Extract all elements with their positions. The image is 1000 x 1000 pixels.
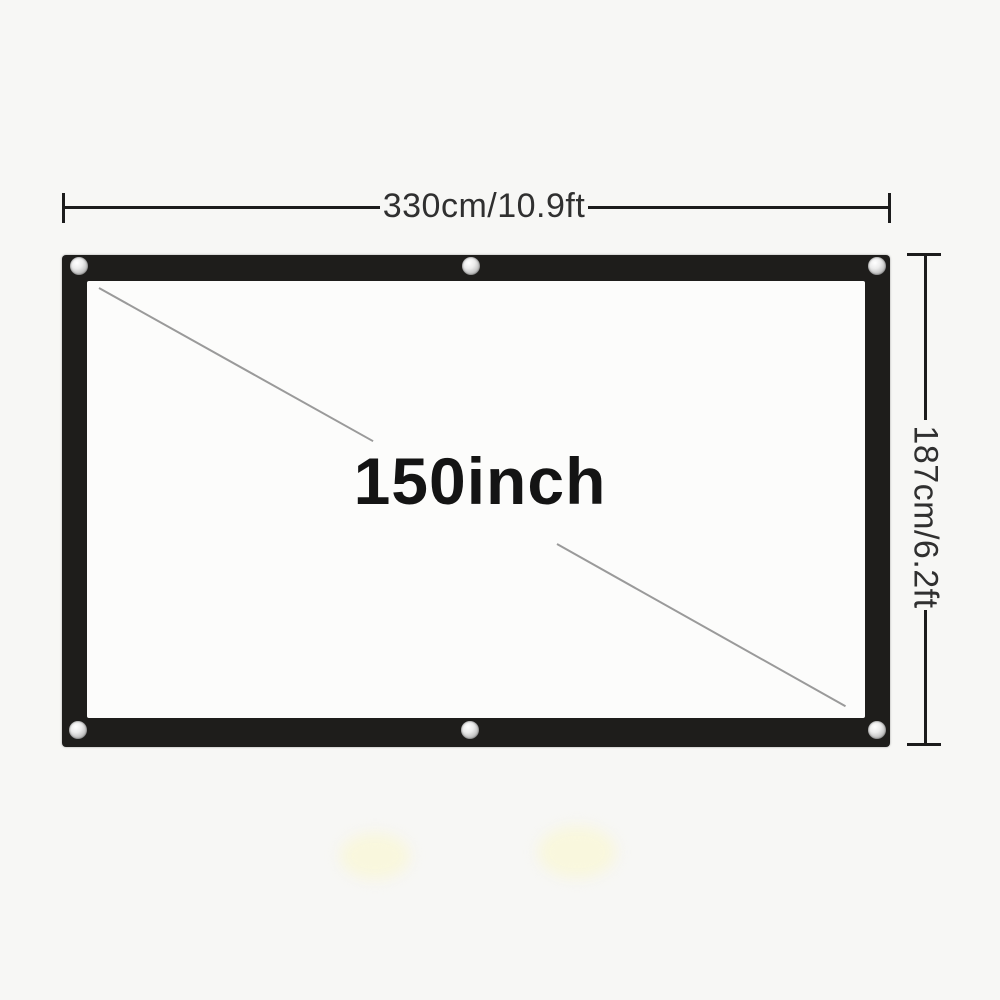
diagonal-size-label: 150inch: [280, 443, 680, 519]
watermark-smudge: [340, 833, 410, 879]
grommet-icon: [868, 721, 886, 739]
grommet-icon: [461, 721, 479, 739]
height-dimension-bottom-tick: [907, 743, 941, 746]
projector-screen-dimension-diagram: 330cm/10.9ft 150inch 187cm/6.2ft: [0, 0, 1000, 1000]
height-dimension-label: 187cm/6.2ft: [906, 425, 945, 608]
grommet-icon: [69, 721, 87, 739]
width-dimension-line-right: [588, 206, 889, 209]
width-dimension-line-left: [64, 206, 380, 209]
grommet-icon: [462, 257, 480, 275]
width-dimension-label: 330cm/10.9ft: [378, 187, 590, 226]
grommet-icon: [70, 257, 88, 275]
height-dimension-line-lower: [924, 610, 927, 745]
width-dimension-right-tick: [888, 193, 891, 223]
height-dimension-line-upper: [924, 255, 927, 420]
grommet-icon: [868, 257, 886, 275]
watermark-smudge: [538, 826, 616, 878]
